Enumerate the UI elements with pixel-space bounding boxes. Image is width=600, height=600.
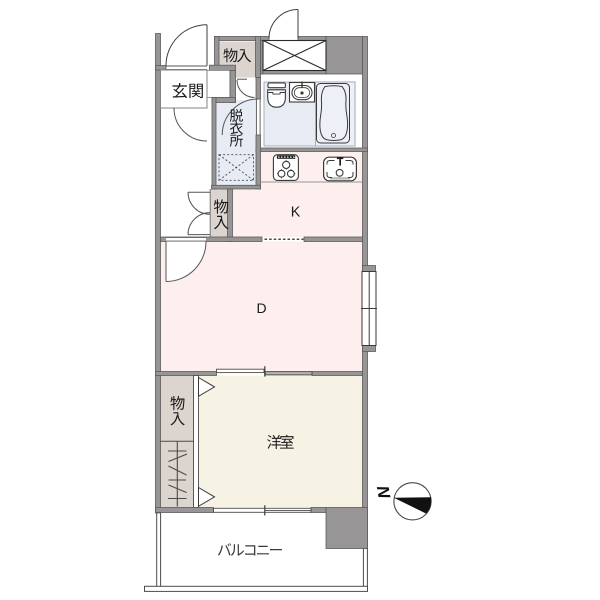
- svg-text:K: K: [291, 205, 301, 221]
- svg-text:D: D: [257, 300, 267, 316]
